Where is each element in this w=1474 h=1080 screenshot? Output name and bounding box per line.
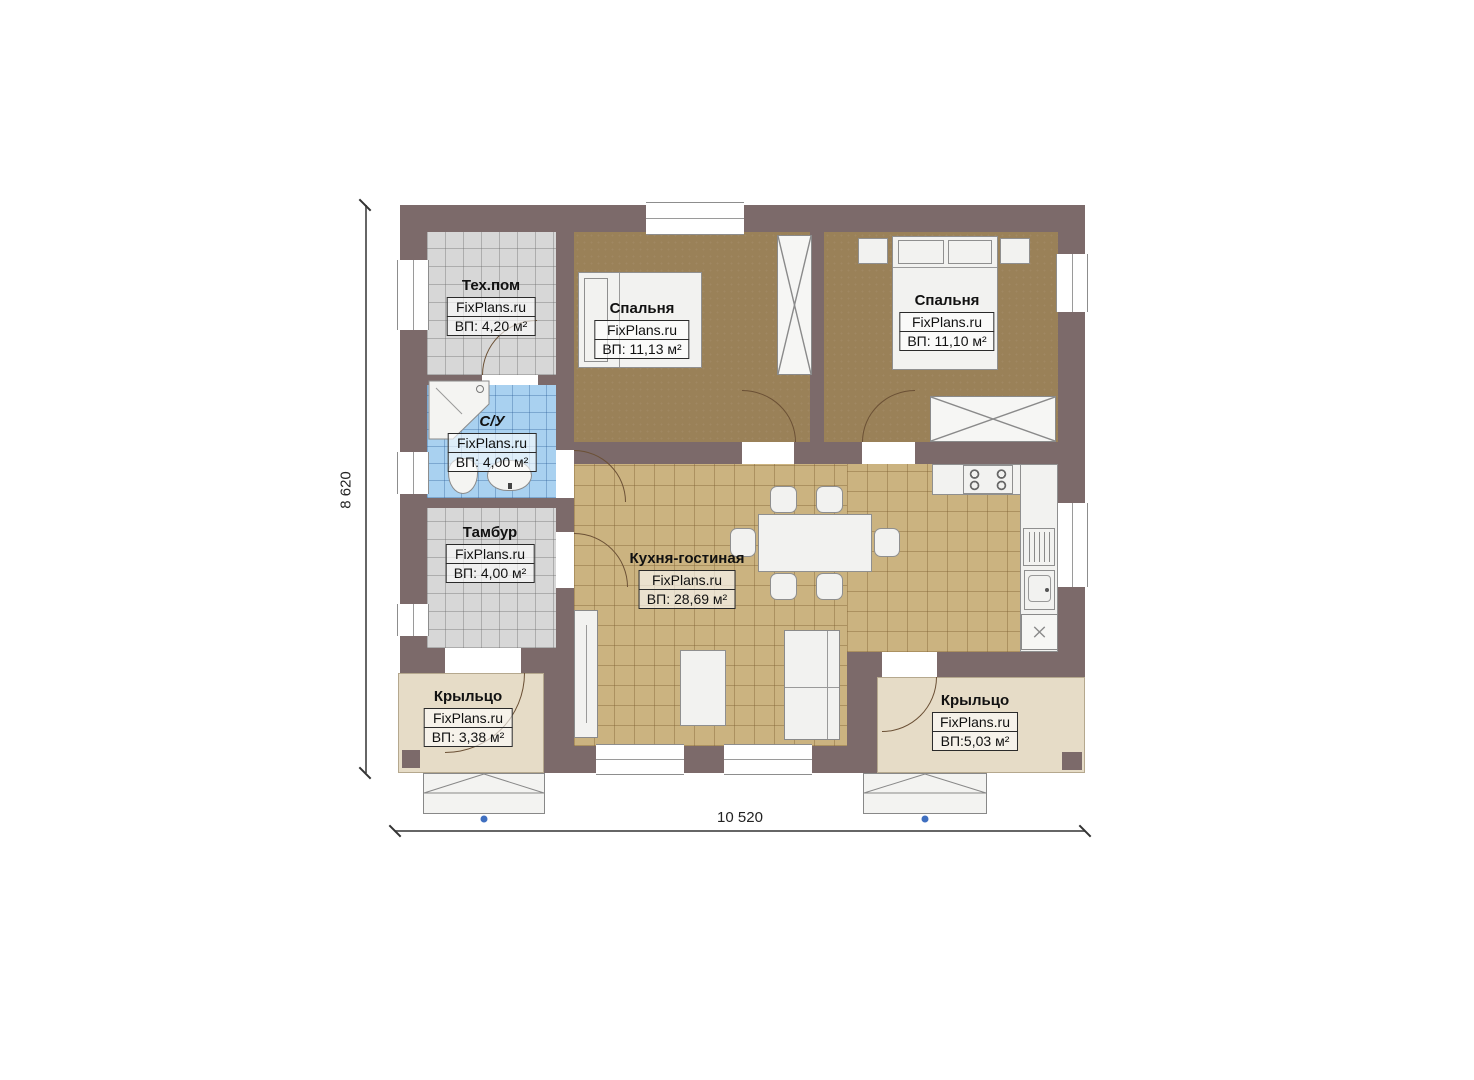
- dining-chair: [816, 573, 843, 600]
- door-opening-tech-bath: [482, 375, 538, 385]
- room-area: ВП: 4,00 м²: [448, 452, 537, 472]
- door-opening-bath-kitchen: [556, 450, 574, 498]
- wardrobe-bedroom1: [777, 235, 812, 375]
- room-area: ВП: 4,00 м²: [446, 563, 535, 583]
- room-watermark: FixPlans.ru: [424, 708, 513, 728]
- room-watermark: FixPlans.ru: [448, 433, 537, 453]
- room-label-vestibule: Тамбур FixPlans.ru ВП: 4,00 м²: [446, 524, 535, 583]
- porch-right-steps: [863, 773, 987, 825]
- room-label-boxes: FixPlans.ru ВП: 3,38 м²: [424, 708, 513, 747]
- room-label-boxes: FixPlans.ru ВП: 11,10 м²: [899, 312, 994, 351]
- room-name: Крыльцо: [932, 692, 1018, 709]
- room-label-boxes: FixPlans.ru ВП: 11,13 м²: [594, 320, 689, 359]
- floor-plan-canvas: Тех.пом FixPlans.ru ВП: 4,20 м² Спальня …: [0, 0, 1474, 1080]
- stove: [963, 465, 1013, 494]
- dimension-line-width: [395, 830, 1085, 832]
- porch-left-pillar: [402, 750, 420, 768]
- dimension-height-label: 8 620: [338, 471, 355, 509]
- window-left-tech: [397, 260, 429, 330]
- porch-left-steps: [423, 773, 545, 825]
- window-top-bedroom1: [646, 202, 744, 235]
- room-watermark: FixPlans.ru: [446, 544, 535, 564]
- room-label-boxes: FixPlans.ru ВП: 28,69 м²: [639, 570, 735, 609]
- room-label-tech: Тех.пом FixPlans.ru ВП: 4,20 м²: [447, 277, 536, 336]
- room-area: ВП: 28,69 м²: [639, 589, 735, 609]
- room-name: Тех.пом: [447, 277, 536, 294]
- sofa: [784, 630, 840, 740]
- room-name: Кухня-гостиная: [630, 550, 745, 567]
- room-area: ВП: 4,20 м²: [447, 316, 536, 336]
- room-label-bathroom: С/У FixPlans.ru ВП: 4,00 м²: [448, 413, 537, 472]
- wardrobe-bedroom2: [930, 396, 1056, 442]
- room-watermark: FixPlans.ru: [447, 297, 536, 317]
- window-bottom-kitchen-1: [596, 744, 684, 775]
- room-area: ВП:5,03 м²: [932, 731, 1018, 751]
- room-name: С/У: [448, 413, 537, 430]
- door-opening-kitchen-porch: [882, 652, 937, 677]
- room-label-boxes: FixPlans.ru ВП: 4,20 м²: [447, 297, 536, 336]
- dining-table: [758, 514, 872, 572]
- room-label-porch-left: Крыльцо FixPlans.ru ВП: 3,38 м²: [424, 688, 513, 747]
- tv-stand: [574, 610, 598, 738]
- dining-chair: [770, 486, 797, 513]
- kitchen-sink: [1024, 570, 1055, 610]
- window-right-bedroom2: [1056, 254, 1088, 312]
- room-watermark: FixPlans.ru: [639, 570, 735, 590]
- door-opening-bedroom1: [742, 442, 794, 464]
- dining-chair: [874, 528, 900, 557]
- room-watermark: FixPlans.ru: [932, 712, 1018, 732]
- room-label-boxes: FixPlans.ru ВП:5,03 м²: [932, 712, 1018, 751]
- room-area: ВП: 11,10 м²: [899, 331, 994, 351]
- nightstand-left-bedroom2: [858, 238, 888, 264]
- pillow-left-bedroom2: [898, 240, 944, 264]
- door-opening-bedroom2: [862, 442, 915, 464]
- room-label-bedroom1: Спальня FixPlans.ru ВП: 11,13 м²: [594, 300, 689, 359]
- window-left-bathroom: [397, 452, 429, 494]
- window-bottom-kitchen-2: [724, 744, 812, 775]
- room-area: ВП: 3,38 м²: [424, 727, 513, 747]
- room-name: Крыльцо: [424, 688, 513, 705]
- dishwasher-cabinet: [1021, 614, 1058, 650]
- room-name: Спальня: [594, 300, 689, 317]
- room-label-bedroom2: Спальня FixPlans.ru ВП: 11,10 м²: [899, 292, 994, 351]
- window-right-kitchen: [1056, 503, 1088, 587]
- dimension-width-label: 10 520: [717, 809, 763, 826]
- fridge: [1023, 528, 1055, 566]
- door-opening-vestibule-porch: [445, 648, 521, 673]
- door-opening-vestibule-kitchen: [556, 532, 574, 588]
- room-name: Спальня: [899, 292, 994, 309]
- dimension-line-height: [365, 205, 367, 773]
- room-label-boxes: FixPlans.ru ВП: 4,00 м²: [446, 544, 535, 583]
- room-label-kitchen: Кухня-гостиная FixPlans.ru ВП: 28,69 м²: [630, 550, 745, 609]
- room-watermark: FixPlans.ru: [899, 312, 994, 332]
- room-label-boxes: FixPlans.ru ВП: 4,00 м²: [448, 433, 537, 472]
- nightstand-right-bedroom2: [1000, 238, 1030, 264]
- room-watermark: FixPlans.ru: [594, 320, 689, 340]
- dining-chair: [816, 486, 843, 513]
- room-name: Тамбур: [446, 524, 535, 541]
- dining-chair: [770, 573, 797, 600]
- porch-right-pillar: [1062, 752, 1082, 770]
- pillow-right-bedroom2: [948, 240, 992, 264]
- window-left-vestibule: [397, 604, 429, 636]
- coffee-table: [680, 650, 726, 726]
- room-label-porch-right: Крыльцо FixPlans.ru ВП:5,03 м²: [932, 692, 1018, 751]
- room-area: ВП: 11,13 м²: [594, 339, 689, 359]
